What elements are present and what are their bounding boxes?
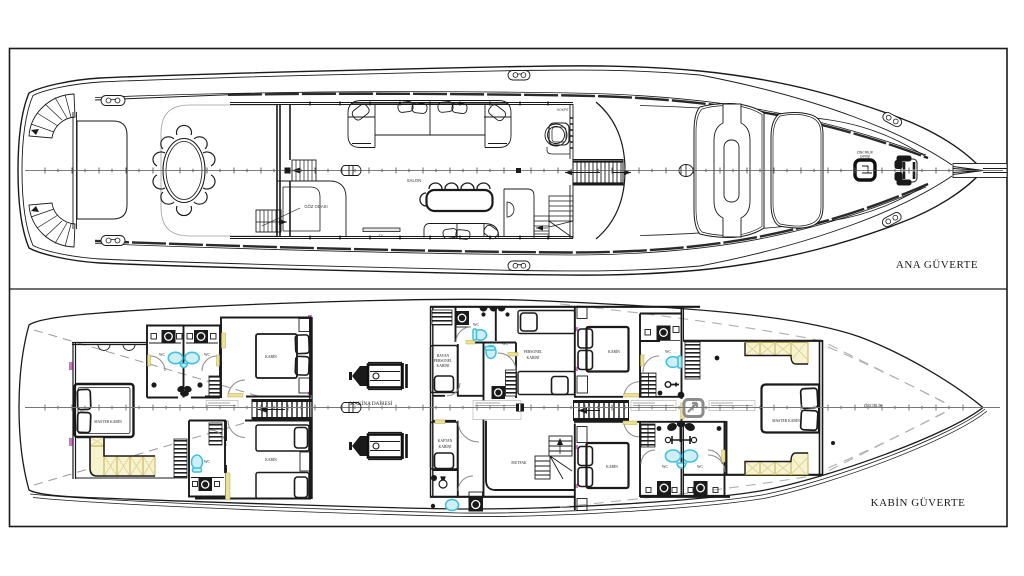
svg-text:WC: WC <box>662 465 668 469</box>
svg-text:WC: WC <box>204 460 210 464</box>
svg-text:KABİN GÜVERTE: KABİN GÜVERTE <box>871 497 966 509</box>
svg-text:WC: WC <box>665 350 671 354</box>
svg-text:GİRİŞİ: GİRİŞİ <box>860 154 870 159</box>
svg-text:MAKİNA DAİRESİ: MAKİNA DAİRESİ <box>350 400 393 407</box>
svg-text:WC: WC <box>502 342 508 346</box>
svg-text:WC: WC <box>204 353 210 357</box>
svg-text:KABİN: KABİN <box>606 464 618 469</box>
svg-text:KABİN: KABİN <box>265 354 277 359</box>
svg-text:KAPTAN: KAPTAN <box>438 439 453 443</box>
svg-text:MASTER KABİN: MASTER KABİN <box>94 419 122 424</box>
svg-text:KABİNİ: KABİNİ <box>527 355 541 360</box>
svg-text:KABİNİ: KABİNİ <box>439 444 453 449</box>
svg-text:KABİNİ: KABİNİ <box>437 363 451 368</box>
svg-text:TV: TV <box>379 234 384 238</box>
svg-text:WC: WC <box>159 353 165 357</box>
svg-text:KOKPIT: KOKPIT <box>557 108 569 112</box>
svg-text:GÖZ ODASI: GÖZ ODASI <box>304 204 327 209</box>
svg-text:MUTFAK: MUTFAK <box>511 461 527 465</box>
svg-text:PERSONEL: PERSONEL <box>434 359 453 363</box>
svg-text:BAYAN: BAYAN <box>437 354 450 358</box>
svg-text:SALON: SALON <box>407 178 421 183</box>
svg-text:KABİN: KABİN <box>265 457 277 462</box>
svg-text:ANA GÜVERTE: ANA GÜVERTE <box>896 259 978 271</box>
svg-text:WC: WC <box>697 465 703 469</box>
svg-text:MASTER KABİN: MASTER KABİN <box>772 418 800 423</box>
svg-text:ZİNCİRLİK: ZİNCİRLİK <box>864 403 883 408</box>
svg-text:PERSONEL: PERSONEL <box>524 350 543 354</box>
svg-text:KABİN: KABİN <box>608 349 620 354</box>
svg-text:WC: WC <box>473 323 479 327</box>
